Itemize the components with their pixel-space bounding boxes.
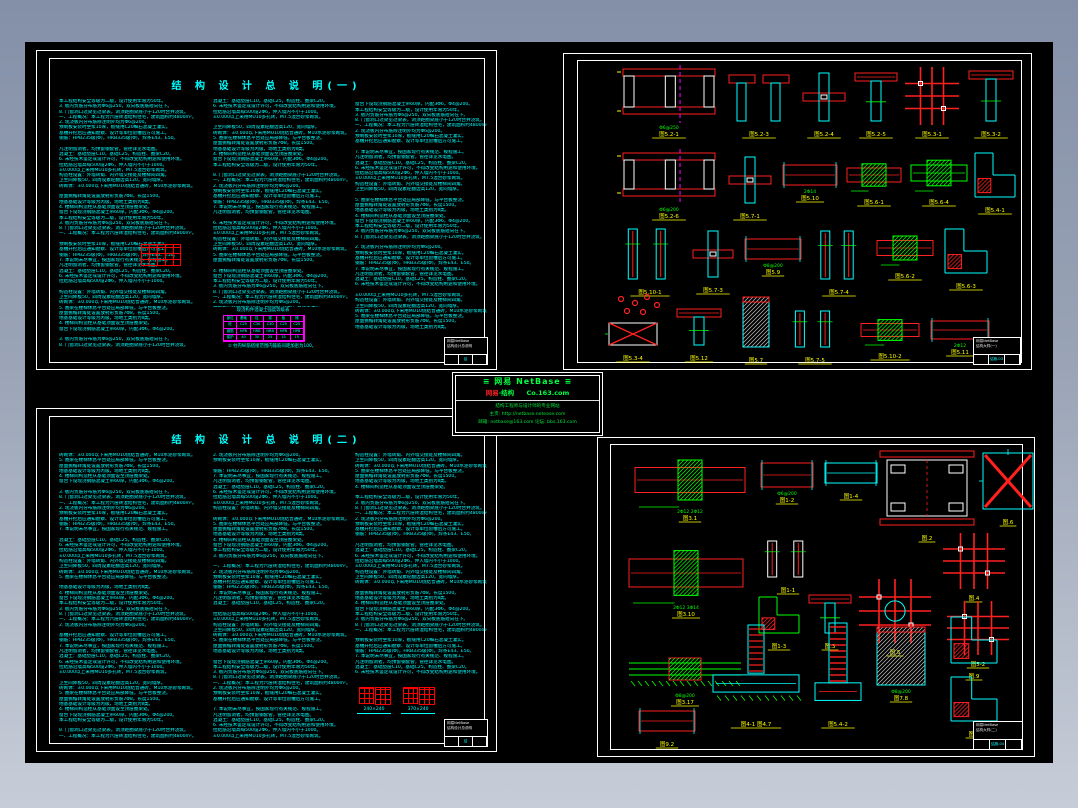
watermark-homepage: 主页: http://netbase.netease.com (453, 411, 602, 417)
detail-图5.6-1: 图5.6-1 (847, 164, 901, 206)
detail-图5.10-1: 图5.10-1 (625, 229, 669, 296)
sheet-details-2: 2Φ12 2Φ12图3.1Φ6@200图1-2图1-4图.2图.62Φ12 3Φ… (597, 437, 1035, 757)
svg-text:图5.11: 图5.11 (951, 348, 969, 356)
table-cell: 30 (251, 335, 264, 341)
spec-text-line: 6. 未经技术鉴定或设计许可，不得改变结构用途和使用环境。 (213, 104, 353, 109)
sheet-title: 结 构 设 计 总 说 明(一) (37, 77, 496, 92)
spec-text-line: ±0.000以上采用MU10多孔砖，M7.5混合砂浆砌筑。 (213, 734, 353, 739)
table-cell: 15 (277, 335, 290, 341)
spec-text-line: 一、工程概况：本工程为六层砖混结构住宅，建筑面积约4800m²。 (213, 564, 353, 569)
svg-text:图.3: 图.3 (825, 642, 836, 650)
watermark-brand-row: 网易·结构 Co.163.com (453, 387, 602, 397)
table-cell: 保护 (224, 335, 237, 341)
rebar-mini-grid (141, 244, 181, 266)
svg-text:图5.2-5: 图5.2-5 (866, 130, 886, 138)
title-block: 网易NetBase结构大样(二) 结施-04 (973, 721, 1023, 750)
svg-text:图5.6-4: 图5.6-4 (929, 198, 949, 206)
spec-text-line: 8. 门窗洞口过梁见过梁表，洞顶距圈梁底小于120时合并浇筑。 (59, 495, 209, 500)
svg-text:图5.4-2: 图5.4-2 (828, 720, 848, 728)
detail-图4-1 图4.7: 图4-1 图4.7 (713, 625, 801, 728)
svg-text:图9.2: 图9.2 (660, 740, 674, 748)
title-block-no: 结施-01 (459, 355, 473, 365)
detail-图5.3-2: 图5.3-2 (969, 71, 1013, 138)
svg-text:图1-2: 图1-2 (780, 496, 794, 504)
brand-green: ·结构 (499, 389, 514, 397)
rebar-section (359, 687, 374, 704)
detail-图5.2-5: 图5.2-5 (855, 73, 897, 138)
concrete-table-caption: 现浇构件混凝土强度等级表 (187, 307, 339, 313)
spec-text-line: 一、工程概况：本工程为六层砖混结构住宅，建筑面积约4800m²。 (59, 617, 209, 622)
detail-图9.2: 图9.2 (639, 708, 695, 748)
svg-text:图5.2-6: 图5.2-6 (659, 212, 679, 220)
svg-text:2Φ14: 2Φ14 (804, 189, 816, 195)
detail-图5.2-4: 图5.2-4 (803, 73, 845, 138)
svg-text:图1-1: 图1-1 (781, 586, 795, 594)
section-label: 240×240 (357, 707, 391, 714)
detail-图5.3-1: 图5.3-1 (905, 67, 959, 138)
detail-图.6: 图.6 (979, 449, 1033, 526)
spec-text-line: 砖砌体：±0.000以下采用MU10烧结普通砖，M10水泥砂浆砌筑。 (59, 300, 209, 305)
detail-图3.1: 2Φ12 2Φ12图3.1 (635, 460, 745, 522)
svg-text:图4-1 图4.7: 图4-1 图4.7 (741, 720, 772, 728)
notes-column: 2. 现浇板内分布筋除注明外均为Φ6@200。预制板安装时坐浆10厚，板缝用C2… (213, 453, 353, 741)
detail-图5.7-1: 图5.7-1 (729, 157, 771, 220)
svg-text:图5.10-1: 图5.10-1 (638, 288, 661, 296)
detail-图5.10: 2Φ14图5.10 (783, 162, 837, 202)
watermark-slogan: 结构工程师与设计师的专业网站 (453, 403, 602, 409)
detail-图.9: 图.9 (951, 617, 997, 680)
title-block: 网易NetBase结构设计总说明 结施-02 (444, 719, 488, 747)
svg-text:图5.7-1: 图5.7-1 (740, 212, 760, 220)
svg-text:图3.17: 图3.17 (676, 698, 694, 706)
svg-text:图1-4: 图1-4 (844, 492, 859, 500)
svg-text:图5.6-3: 图5.6-3 (956, 282, 976, 290)
detail-图5.7: 图5.7 (743, 297, 769, 364)
svg-text:Φ8@200: Φ8@200 (891, 689, 911, 695)
watermark-email: 邮箱: netbase@163.com 论坛: bbs.163.com (453, 419, 602, 425)
svg-text:图1-3: 图1-3 (772, 642, 787, 650)
spec-text-line: 钢筋：HPB235级(Φ)，HRB335级(Φ)，焊条E43、E50。 (355, 261, 487, 266)
title-block-no: 结施-02 (459, 737, 473, 747)
svg-text:图5.6-2: 图5.6-2 (895, 272, 915, 280)
spec-text-line: 一、工程概况：本工程为六层砖混结构住宅，建筑面积约4800m²。 (59, 734, 209, 739)
rebar-section (375, 687, 391, 705)
detail-图1-1: 图1-1 (765, 541, 806, 594)
title-block-name: 结构大样(二) (976, 728, 1020, 733)
title-block: 网易NetBase结构大样(一) 结施-03 (973, 337, 1021, 365)
watermark-divider (456, 400, 599, 401)
title-block-name: 结构设计总说明 (447, 726, 485, 731)
detail-drawings-canvas: 2Φ12 2Φ12图3.1Φ6@200图1-2图1-4图.2图.62Φ12 3Φ… (611, 445, 1021, 747)
detail-图3.10: 2Φ12 3Φ14图3.10 (629, 551, 743, 618)
svg-text:Φ6@200: Φ6@200 (659, 207, 679, 213)
svg-text:2Φ12: 2Φ12 (954, 343, 966, 349)
sheet-notes-2: 结 构 设 计 总 说 明(二) 砖砌体：±0.000以下采用MU10烧结普通砖… (36, 408, 497, 752)
brand-red: 网易 (486, 389, 499, 397)
svg-text:2Φ12 2Φ12: 2Φ12 2Φ12 (677, 509, 703, 515)
svg-text:图5-2: 图5-2 (971, 660, 985, 668)
detail-scatter (619, 295, 660, 315)
notes-column: 窗台下设现浇钢筋混凝土带60厚，内配3Φ6，Φ4@200。本工程结构安全等级为二… (355, 97, 487, 337)
detail-图5.3-4: 图5.3-4 (605, 323, 657, 362)
detail-图5.2-3: 图5.2-3 (729, 75, 789, 138)
svg-text:图5.3-1: 图5.3-1 (922, 130, 942, 138)
detail-图1-4: 图1-4 (825, 460, 877, 500)
svg-text:图.6: 图.6 (1003, 518, 1014, 526)
svg-text:图5.2-1: 图5.2-1 (659, 130, 679, 138)
svg-text:图5.10: 图5.10 (801, 194, 819, 202)
detail-图5.6-3: 图5.6-3 (945, 229, 987, 290)
spec-text-line: 8. 门窗洞口过梁见过梁表，洞顶距圈梁底小于120时合并浇筑。 (213, 675, 353, 680)
spec-text-line: 钢筋：HPB235级(Φ)，HRB335级(Φ)，焊条E43、E50。 (213, 585, 353, 590)
detail-图5.2-1: Φ6@250图5.2-1 (617, 65, 715, 138)
svg-text:图7.8: 图7.8 (894, 694, 909, 702)
svg-text:Φ8@200: Φ8@200 (675, 693, 695, 699)
cad-viewer-window: 结 构 设 计 总 说 明(一) 本工程结构安全等级为二级，设计使用年限为50年… (0, 0, 1078, 808)
spec-text-line: 6. 未经技术鉴定或设计许可，不得改变结构用途和使用环境。 (355, 670, 487, 675)
spec-text-line: 砖砌体：±0.000以下采用MU10烧结普通砖，M10水泥砂浆砌筑。 (213, 247, 353, 252)
detail-图1-3: 图1-3 (759, 597, 799, 650)
detail-图5.10-2: 图5.10-2 (861, 320, 919, 360)
spec-text-line: 砖砌体：±0.000以下采用MU10烧结普通砖，M10水泥砂浆砌筑。 (355, 580, 487, 585)
detail-图5.4-2: 图5.4-2 (815, 623, 861, 728)
sheet-notes-1: 结 构 设 计 总 说 明(一) 本工程结构安全等级为二级，设计使用年限为50年… (36, 50, 497, 370)
svg-text:图5.9: 图5.9 (766, 268, 781, 276)
spec-text-line: 一、工程概况：本工程为六层砖混结构住宅，建筑面积约4800m²。 (355, 511, 487, 516)
detail-图.4: 图.4 (943, 533, 1005, 602)
sheet-title: 结 构 设 计 总 说 明(二) (37, 431, 496, 446)
table-cell: 15 (291, 335, 304, 341)
table-cell: 25 (264, 335, 277, 341)
detail-图5.7-3: 图5.7-3 (693, 231, 733, 294)
title-block: 网易NetBase结构设计总说明 结施-01 (444, 337, 488, 365)
svg-text:图3.1: 图3.1 (683, 514, 697, 522)
svg-text:图5.7-4: 图5.7-4 (829, 288, 849, 296)
detail-图5.4-1: 图5.4-1 (975, 153, 1015, 214)
detail-图1-2: Φ6@200图1-2 (761, 460, 813, 504)
notes-column: 构造柱设置：外墙转角、内外墙交接处及楼梯间四角。卫生间降板50，四周设素砼翻边高… (355, 453, 487, 679)
detail-图5.9: Φ8@200图5.9 (745, 236, 801, 276)
detail-图7.8: Φ8@200图7.8 (877, 627, 925, 702)
title-block-name: 结构设计总说明 (447, 344, 485, 349)
detail-图5.6-4: 图5.6-4 (911, 160, 967, 206)
notes-column: 砖砌体：±0.000以下采用MU10烧结普通砖，M10水泥砂浆砌筑。5. 圈梁在… (59, 453, 209, 741)
svg-text:图5.7: 图5.7 (749, 356, 764, 364)
svg-text:Φ6@200: Φ6@200 (777, 491, 797, 497)
watermark-title: ≡ 网易 NetBase ≡ (453, 376, 602, 387)
detail-图5.7-4: 图5.7-4 (818, 231, 856, 296)
svg-text:图5.6-1: 图5.6-1 (864, 198, 884, 206)
spec-text-line: 3. 板内负筋分布筋为Φ6@250，双向板底筋短向在下。 (355, 617, 487, 622)
spec-text-line: 3. 板内负筋分布筋为Φ6@250，双向板底筋短向在下。 (355, 229, 487, 234)
detail-图5.6-2: 图5.6-2 (877, 236, 933, 280)
title-block-no: 结施-04 (990, 740, 1006, 750)
detail-图3.17: Φ8@200图3.17 (629, 658, 741, 706)
brand-site: Co.163.com (526, 389, 569, 397)
svg-text:图.4: 图.4 (969, 594, 980, 602)
spec-text-line: 钢筋：HPB235级(Φ)，HRB335级(Φ)，焊条E43、E50。 (355, 532, 487, 537)
svg-text:图3.10: 图3.10 (677, 610, 695, 618)
spec-text-line: 一、工程概况：本工程为六层砖混结构住宅，建筑面积约4800m²。 (213, 178, 353, 183)
sheet-details-1: Φ6@250图5.2-1图5.2-3图5.2-4图5.2-5图5.3-1图5.3… (563, 53, 1032, 370)
svg-text:图5.10-2: 图5.10-2 (878, 352, 901, 360)
title-block-no: 结施-03 (989, 355, 1004, 365)
rebar-section (403, 687, 418, 704)
concrete-grade-table: 部位基础柱梁板梯砼C25C30C30C25C25钢筋HPBHRBHRBHPBHP… (223, 315, 305, 342)
svg-text:2Φ12 3Φ14: 2Φ12 3Φ14 (673, 605, 699, 611)
svg-text:图5.4-1: 图5.4-1 (985, 206, 1005, 214)
svg-text:图5.7-5: 图5.7-5 (805, 356, 825, 364)
spec-text-line: 一、工程概况：本工程为六层砖混结构住宅，建筑面积约4800m²。 (59, 231, 209, 236)
detail-图.2: 图.2 (880, 451, 974, 542)
title-block-name: 结构大样(一) (976, 344, 1018, 349)
spec-text-line: 地基基础设计等级为丙级，场地土类别为Ⅱ类。 (355, 325, 487, 330)
svg-text:图.2: 图.2 (922, 534, 933, 542)
svg-text:图5.2-4: 图5.2-4 (814, 130, 834, 138)
table-cell: 40 (237, 335, 250, 341)
spec-text-line: 一、工程概况：本工程为六层砖混结构住宅，建筑面积约4800m²。 (355, 123, 487, 128)
detail-图5.2-6: Φ6@200图5.2-6 (617, 149, 715, 220)
spec-text-line: 8. 门窗洞口过梁见过梁表，洞顶距圈梁底小于120时合并浇筑。 (355, 235, 487, 240)
detail-图.5: 图.5 (859, 579, 931, 656)
section-label: 370×240 (401, 707, 435, 714)
svg-text:Φ8@200: Φ8@200 (763, 263, 783, 269)
spec-text-line: 混凝土：基础垫层C10，基础C25，构造柱、圈梁C20。 (355, 548, 487, 553)
netbase-watermark: ≡ 网易 NetBase ≡ 网易·结构 Co.163.com 结构工程师与设计… (452, 372, 603, 436)
svg-text:图5.2-3: 图5.2-3 (749, 130, 769, 138)
svg-text:图5.12: 图5.12 (690, 354, 708, 362)
detail-图5.7-5: 图5.7-5 (792, 311, 832, 364)
spec-text-line: 窗台下设现浇钢筋混凝土带60厚，内配3Φ6，Φ4@200。 (355, 102, 487, 107)
detail-图5.12: 图5.12 (677, 309, 721, 362)
svg-text:图5.3-4: 图5.3-4 (623, 354, 643, 362)
spec-text-line: 6. 未经技术鉴定或设计许可，不得改变结构用途和使用环境。 (355, 282, 487, 287)
concrete-table-note: ② 柱内纵筋搭接范围内箍筋间距加密为100。 (187, 343, 357, 349)
svg-text:图5.3-2: 图5.3-2 (981, 130, 1001, 138)
spec-text-line: 砖砌体：±0.000以下采用MU10烧结普通砖，M10水泥砂浆砌筑。 (59, 184, 209, 189)
spec-text-line: 8. 门窗洞口过梁见过梁表，洞顶距圈梁底小于120时合并浇筑。 (59, 728, 209, 733)
rebar-section (419, 687, 435, 705)
svg-text:图.9: 图.9 (969, 672, 980, 680)
detail-drawings-canvas: Φ6@250图5.2-1图5.2-3图5.2-4图5.2-5图5.3-1图5.3… (579, 61, 1016, 361)
svg-text:Φ6@250: Φ6@250 (659, 125, 679, 131)
spec-text-line: 一、工程概况：本工程为六层砖混结构住宅，建筑面积约4800m²。 (355, 628, 487, 633)
svg-text:图5.7-3: 图5.7-3 (703, 286, 723, 294)
